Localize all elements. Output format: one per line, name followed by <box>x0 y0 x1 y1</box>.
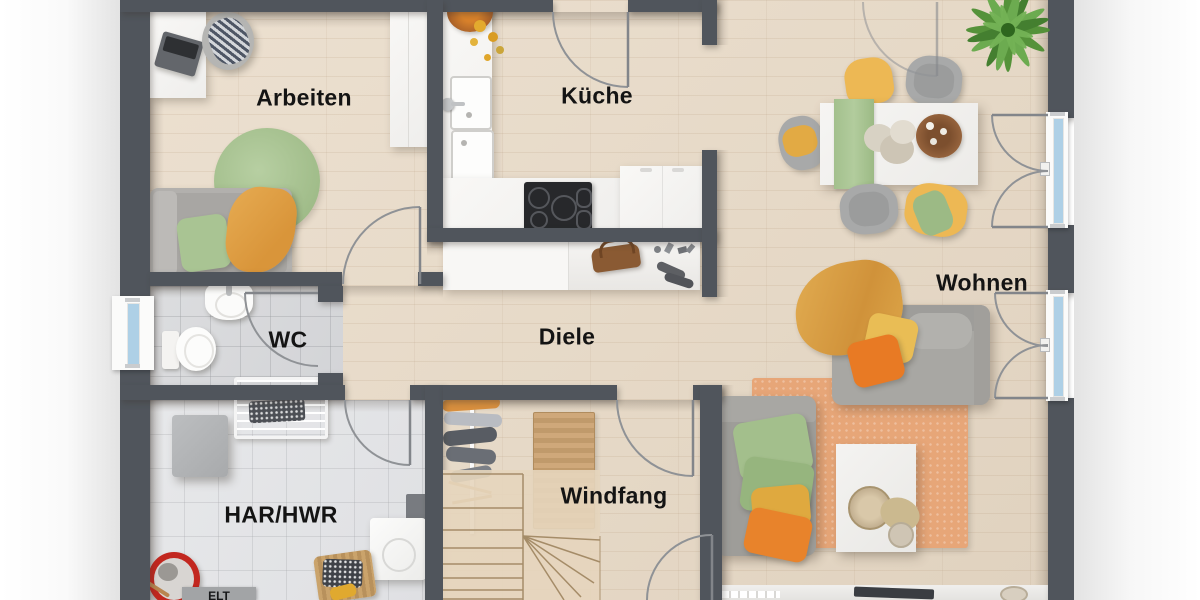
wall-exterior-right-top <box>1048 0 1074 118</box>
books-stack <box>722 591 780 598</box>
dining-chair-gray-top <box>904 54 964 109</box>
wall-wc-har-west <box>120 385 345 400</box>
exterior-ground-right <box>1074 0 1200 600</box>
french-door-upper-glass <box>1053 118 1064 224</box>
wall-kueche-dining-top <box>702 0 717 45</box>
wall-har-windfang <box>425 385 443 600</box>
tv-sideboard <box>714 585 1048 600</box>
kitchen-sink-basin-2 <box>451 130 494 182</box>
cooktop <box>524 182 592 234</box>
coat-rack <box>440 394 504 536</box>
door-handle <box>1040 162 1050 176</box>
toilet-bowl <box>176 327 216 371</box>
exterior-ground-left <box>0 0 120 600</box>
flower-vase-yellow <box>468 12 518 68</box>
french-door-upper <box>1046 112 1068 228</box>
vase-dried-flowers <box>876 496 924 552</box>
wardrobe-divider <box>408 0 409 147</box>
elt-label: ELT <box>208 589 230 600</box>
french-door-lower <box>1046 290 1068 401</box>
laundry-cloth-dotted <box>322 559 363 588</box>
room-label-diele: Diele <box>539 324 595 351</box>
sink-drain <box>461 140 467 146</box>
wall-exterior-right-mid <box>1048 225 1074 293</box>
wall-arbeiten-bottom-east <box>418 272 443 286</box>
doormat <box>533 412 595 529</box>
coat-gray <box>445 446 496 465</box>
wall-arbeiten-bottom-west <box>150 272 342 286</box>
cabinet-handle <box>672 168 684 172</box>
wc-window-glass <box>127 303 140 365</box>
wall-windfang-wohnen <box>700 385 722 600</box>
coat-dark <box>442 426 497 447</box>
daybed-headrest <box>153 191 177 275</box>
room-label-arbeiten: Arbeiten <box>256 85 352 112</box>
room-label-wc: WC <box>269 327 308 354</box>
laptop-screen <box>162 36 199 60</box>
water-heater <box>172 415 228 477</box>
wall-exterior-right-bottom <box>1048 398 1074 600</box>
wall-kueche-bottom <box>427 228 717 242</box>
room-label-har-hwr: HAR/HWR <box>224 502 337 529</box>
wc-window <box>112 296 154 370</box>
table-centerpiece-bouquet <box>864 118 920 170</box>
french-door-lower-glass <box>1053 296 1064 397</box>
floor-plan-render: ELT <box>0 0 1200 600</box>
tablet <box>854 587 934 600</box>
room-label-kueche: Küche <box>561 83 633 110</box>
round-speaker <box>1000 586 1028 600</box>
cabinet-handle <box>640 168 652 172</box>
washing-machine <box>370 518 426 580</box>
wall-windfang-top-west <box>443 385 617 400</box>
elt-panel: ELT <box>182 587 256 600</box>
coat-silver <box>444 411 503 427</box>
room-label-windfang: Windfang <box>561 483 668 510</box>
wall-exterior-top-west <box>120 0 553 12</box>
keys-and-accessories <box>652 242 696 260</box>
door-handle <box>1040 338 1050 352</box>
laundry-basket <box>313 549 377 600</box>
wardrobe <box>390 0 428 147</box>
kitchen-faucet-spout <box>451 102 465 106</box>
wall-wc-right-bottom <box>318 373 343 385</box>
table-bowl-flowers <box>916 114 962 158</box>
wall-kueche-dining-mid <box>702 150 717 297</box>
sink-drain <box>466 112 472 118</box>
laundry-patterned <box>248 399 305 424</box>
shoes-pair <box>656 264 696 290</box>
room-label-wohnen: Wohnen <box>936 270 1028 297</box>
wall-wc-right-top <box>318 286 343 302</box>
wc-sink <box>205 284 253 320</box>
daybed-pillow-green <box>175 213 232 273</box>
kitchen-tall-cabinet <box>620 166 705 236</box>
wall-arbeiten-kueche <box>427 0 443 242</box>
